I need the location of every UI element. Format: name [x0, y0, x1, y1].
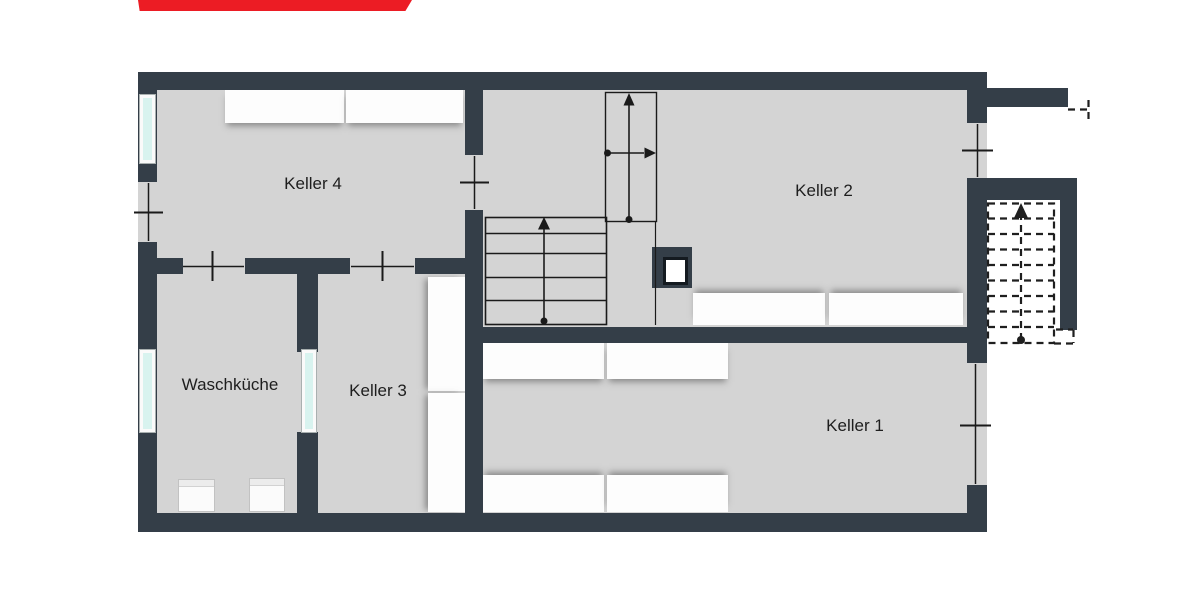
- storage-shelf: [693, 293, 825, 325]
- window-glass: [305, 353, 313, 429]
- exterior-stair-wall-right: [1060, 200, 1077, 330]
- washing-machine-top: [179, 480, 214, 487]
- room-label-keller1: Keller 1: [795, 417, 915, 435]
- washing-machine-1: [178, 479, 215, 512]
- walkline-start-dot: [1017, 336, 1025, 344]
- wall-waschkueche-keller3-upper: [297, 274, 318, 352]
- window-glass: [143, 98, 152, 160]
- wall-keller4-south-b: [245, 258, 350, 274]
- room-label-keller3: Keller 3: [318, 382, 438, 400]
- floor-plan: Keller 4 Keller 2 Waschküche Keller 3 Ke…: [0, 0, 1200, 600]
- window-waschkueche-west: [139, 349, 156, 433]
- exterior-stair-wall-top: [967, 178, 1077, 200]
- window-waschkueche-keller3: [301, 349, 317, 433]
- logo-banner: [138, 0, 412, 11]
- wall-right-upper: [967, 90, 987, 123]
- chimney-block: [652, 247, 692, 288]
- storage-shelf: [346, 90, 463, 123]
- wall-hall-west-upper: [465, 90, 483, 155]
- washing-machine-2: [249, 478, 285, 512]
- storage-shelf: [829, 293, 963, 325]
- storage-shelf: [483, 475, 604, 512]
- wall-keller4-south-a: [157, 258, 183, 274]
- window-gap-keller1: [967, 363, 987, 485]
- window-glass: [143, 353, 152, 429]
- wall-top: [138, 72, 987, 90]
- storage-shelf: [607, 343, 728, 379]
- washing-machine-top: [250, 479, 284, 486]
- chimney-flue: [663, 257, 688, 285]
- storage-shelf: [428, 277, 465, 391]
- wall-waschkueche-keller3-lower: [297, 432, 318, 513]
- storage-shelf: [428, 393, 465, 512]
- wall-bottom: [138, 513, 987, 532]
- window-gap-keller2: [967, 123, 987, 178]
- storage-shelf: [483, 343, 604, 379]
- stair-up-arrow: [1014, 203, 1028, 218]
- wall-right-lower: [967, 485, 987, 513]
- wall-stub-top-right: [985, 88, 1068, 107]
- wall-hall-west-lower: [465, 210, 483, 513]
- storage-shelf: [225, 90, 344, 123]
- room-label-keller2: Keller 2: [764, 182, 884, 200]
- storage-shelf: [607, 475, 728, 512]
- door-gap-left-wall: [138, 182, 157, 242]
- wall-keller1-north: [465, 327, 987, 343]
- room-label-waschkueche: Waschküche: [160, 376, 300, 394]
- wall-keller4-south-c: [415, 258, 467, 274]
- window-keller4-west: [139, 94, 156, 164]
- room-label-keller4: Keller 4: [253, 175, 373, 193]
